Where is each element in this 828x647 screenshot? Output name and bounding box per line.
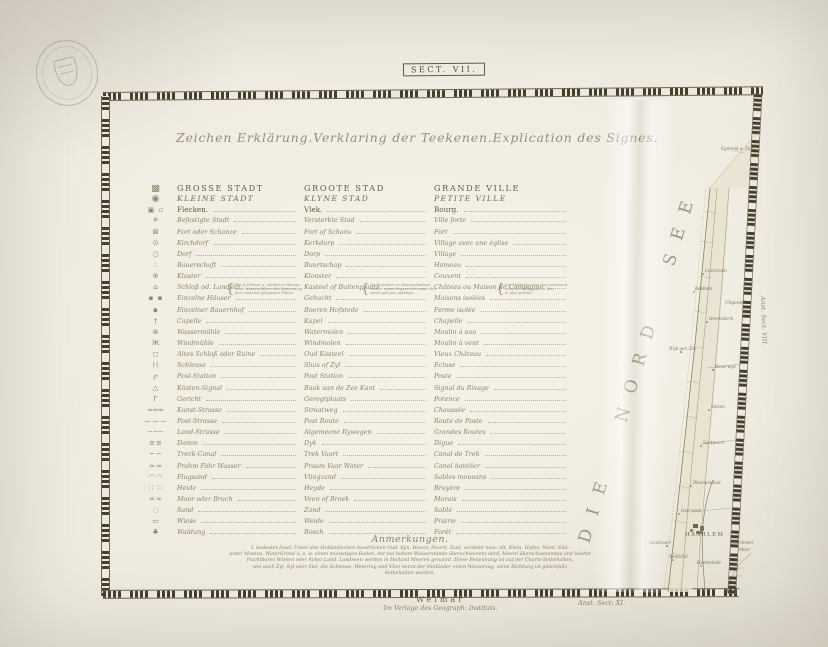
windmill-icon: Ж [135,339,177,347]
map-place-label: Beverwyk [714,364,736,369]
legend-term-fr: Village [434,250,456,258]
dotted-leader [465,397,566,401]
legend-cell-de: Einzelner Bauernhof [177,306,304,314]
dotted-leader [465,486,566,490]
legend-row: ~~Treck-CanalTrek VaartCanal de Trek [135,450,577,461]
legend-term-de: Befestigte Stadt [177,216,229,224]
legend-term-de: Moor oder Bruch [177,495,233,503]
legend-cell-nl: Kerkdorp [304,239,434,247]
map-place-label: Wyk aan Zee [669,346,697,351]
dotted-leader [328,319,426,323]
water-mill-icon: ⊗ [135,328,177,336]
legend-term-nl: Kapel [304,317,323,325]
castle-note-german: {Die Schlösser u. adelichen Häuserohne N… [226,280,350,299]
legend-term-de: Schleuse [177,361,206,369]
legend-cell-fr: Signal du Rivage [434,384,574,392]
dotted-leader [227,408,296,412]
legend-term-de: Post-Strasse [177,417,217,425]
legend-cell-nl: Dorp [304,250,434,258]
legend-cell-fr: Route de Poste [434,417,574,425]
map-place-label: Bloemendaal [692,480,721,485]
church-village-icon: ⊙ [135,239,177,247]
legend-cell-nl: Algemeene Rywegen [304,428,434,436]
legend-cell-nl: Watermolen [304,328,434,336]
legend-cell-de: Capelle [177,317,304,325]
legend-term-de: Heide [177,484,196,492]
legend-cell-fr: Écluse [434,361,574,369]
legend-term-fr: Sables mouvans [434,473,486,481]
dotted-leader [325,508,426,512]
dotted-leader [471,218,566,222]
legend-cell-de: Befestigte Stadt [177,216,304,224]
legend-cell-de: Post-Strasse [177,417,304,425]
legend-row: ▣ ▫Flecken.Vlek.Bourg. [135,205,577,216]
legend-cell-de: Flecken. [177,205,304,214]
dotted-leader [466,263,566,267]
legend-term-nl: Klooster [304,272,331,280]
market-town-icon: ▣ ▫ [135,206,177,214]
dotted-leader [219,341,296,345]
legend-term-de: Damm [177,439,198,447]
legend-term-de: Wiese [177,517,196,525]
dotted-leader [206,319,296,323]
legend-cell-de: Kirchdorf [177,239,304,247]
dotted-leader [322,441,426,445]
legend-cell-fr: Bourg. [434,205,574,214]
dotted-leader [457,374,566,378]
legend-cell-fr: Moulin à eau [434,328,574,336]
dotted-leader [327,208,426,212]
dotted-leader [212,475,296,479]
legend-row: ▩GROSSE STADTGROOTE STADGRANDE VILLE [135,183,577,194]
legend-term-nl: Zand [304,506,320,514]
map-place-label: Egmond a. Zee [720,146,753,151]
legend-cell-de: Gericht [177,395,304,403]
monastery-icon: ⊕ [135,272,177,280]
country-road-icon: ╌╌╌ [135,428,177,436]
legend-cell-nl: Geregtplaats [304,395,434,403]
castle-note-dutch: {De Kasteelen en Buitenplaatsenzonder na… [361,280,485,299]
legend-row: †CapelleKapelChapelle [135,317,577,328]
dotted-leader [360,218,426,222]
heading-dutch: Verklaring der Teekenen. [313,130,492,145]
legend-term-de: Bauerschaft [177,261,216,269]
legend-term-de: Wassermühle [177,328,220,336]
legend-term-fr: PETITE VILLE [434,194,507,203]
legend-term-fr: Ville forte [434,216,466,224]
legend-term-de: Flecken. [177,205,208,214]
stamp-shield-icon [53,56,81,88]
legend-term-nl: Algemeene Rywegen [304,428,372,436]
legend-cell-fr: Fort [434,228,574,236]
legend-term-nl: Vlek. [304,205,322,214]
dotted-leader [462,497,566,501]
legend-term-fr: Poste [434,372,452,380]
legend-cell-de: Dorf [177,250,304,258]
sheet-border-left [101,96,110,596]
dotted-leader [222,419,296,423]
legend-term-fr: Village avec une église [434,239,508,247]
dotted-leader [356,230,426,234]
legend-row: ∷ ∷HeideHeydeBruyère [135,484,577,495]
legend-term-fr: Signal du Rivage [434,384,489,392]
legend-term-de: Küsten-Signal [177,384,222,392]
legend-term-de: KLEINE STADT [177,194,254,203]
legend-cell-fr: Sable [434,506,574,514]
note-lines: De Kasteelen en Buitenplaatsenzonder naa… [370,284,441,296]
legend-term-de: Sand [177,506,193,514]
legend-heading: Zeichen Erklärung. Verklaring der Teeken… [176,130,596,145]
legend-cell-de: Wiese [177,517,304,525]
library-stamp-icon [29,33,105,112]
map-place-label: Meer [738,547,751,552]
dotted-leader [221,452,296,456]
map-place-label: Santpoort [703,440,724,445]
legend-cell-de: Wassermühle [177,328,304,336]
dotted-leader [227,386,296,390]
legend-cell-nl: Boeren Hofstede [304,306,434,314]
dotted-leader [348,374,426,378]
legend-term-fr: Vieux Château [434,350,481,358]
meadow-icon: ▭ [135,517,177,525]
legend-row: ◻Altes Schloß oder RuineOud KasteelVieux… [135,350,577,361]
legend-cell-de: Heide [177,484,304,492]
scanned-atlas-legend-sheet: SECT. VII. Zeichen Erklärung. Verklaring… [0,0,828,647]
legend-cell-nl: Praam Vaar Water [304,462,434,470]
legend-cell-fr: Digue [434,439,574,447]
legend-row: )(SchleuseSluis of ZylÉcluse [135,361,577,372]
chapel-icon: † [135,317,177,325]
legend-cell-de: KLEINE STADT [177,194,304,203]
legend-term-nl: Veen of Broek [304,495,349,503]
legend-cell-de: Fort oder Schanze [177,228,304,236]
castle-estate-icon: ⌂ [135,283,177,291]
legend-term-fr: Couvent [434,272,461,280]
legend-row: ⊠Fort oder SchanzeFort of SchansFort [135,228,577,239]
map-fragment: DIE NORD SEE [555,92,780,604]
legend-row: ▪Einzelner BauernhofBoeren HofstedeFerme… [135,306,577,317]
legend-term-fr: Hameau [434,261,461,269]
legend-term-de: Kirchdorf [177,239,208,247]
legend-cell-de: Moor oder Bruch [177,495,304,503]
legend-cell-fr: Poste [434,372,574,380]
legend-cell-nl: Fort of Schans [304,228,434,236]
legend-term-de: Gericht [177,395,201,403]
legend-cell-nl: Windmolen [304,339,434,347]
map-place-label: Castricum [705,268,727,273]
dotted-leader [468,319,566,323]
legend-cell-fr: Bruyère [434,484,574,492]
legend-cell-fr: PETITE VILLE [434,194,574,203]
dotted-leader [341,475,426,479]
legend-term-de: Treck-Canal [177,450,216,458]
heath-icon: ∷ ∷ [135,484,177,492]
dotted-leader [206,397,296,401]
dotted-leader [485,452,566,456]
dotted-leader [344,419,426,423]
legend-cell-nl: Sluis of Zyl [304,361,434,369]
legend-term-de: GROSSE STADT [177,183,264,193]
legend-term-nl: GROOTE STAD [304,183,385,193]
imprint-city: Weimar [358,595,523,604]
dotted-leader [205,274,296,278]
dotted-leader [213,241,296,245]
dotted-leader [238,497,296,501]
legend-cell-nl: Kapel [304,317,434,325]
legend-term-nl: Heyde [304,484,325,492]
legend-cell-fr: Chapelle [434,317,574,325]
brace-glyph: { [361,282,369,297]
legend-term-de: Capelle [177,317,201,325]
dotted-leader [339,241,426,245]
legend-term-fr: Fort [434,228,448,236]
dotted-leader [196,252,296,256]
dotted-leader [325,252,426,256]
legend-term-nl: Weide [304,517,324,525]
map-place-label: Uitgeest [725,300,743,305]
legend-term-de: Windmühle [177,339,214,347]
dotted-leader [211,363,296,367]
legend-cell-nl: Heyde [304,484,434,492]
legend-cell-fr: Couvent [434,272,574,280]
map-place-label: Velsen [711,404,725,409]
single-farm-icon: ▪ [135,306,177,314]
legend-term-fr: Chaussée [434,406,465,414]
dotted-leader [351,397,426,401]
legend-cell-de: Treck-Canal [177,450,304,458]
legend-cell-nl: Oud Kasteel [304,350,434,358]
dotted-leader [234,218,296,222]
dotted-leader [213,208,296,212]
legend-row: ◌SandZandSable [135,506,577,517]
legend-cell-nl: Baak aan de Zee Kant [304,384,434,392]
legend-cell-nl: Dyk [304,439,434,447]
legend-cell-de: Prahm Fahr Wasser [177,462,304,470]
dotted-leader [349,352,426,356]
legend-term-nl: Oud Kasteel [304,350,344,358]
legend-row: ▭WieseWeidePrairie [135,517,577,528]
legend-term-fr: Prairie [434,517,456,525]
gallows-icon: Γ [135,395,177,403]
legend-term-nl: Baak aan de Zee Kant [304,384,375,392]
legend-cell-fr: Village [434,250,574,258]
legend-row: ⊙KirchdorfKerkdorpVillage avec une églis… [135,239,577,250]
legend-cell-nl: Post Station [304,372,434,380]
legend-term-nl: Kerkdorp [304,239,334,247]
legend-cell-de: Altes Schloß oder Ruine [177,350,304,358]
legend-cell-fr: Vieux Château [434,350,574,358]
dotted-leader [346,341,426,345]
adjoining-sheet-label-bottom: Anst. Sect: XI. [578,599,625,607]
dotted-leader [461,519,566,523]
legend-term-de: Kloster [177,272,200,280]
legend-row: ◉KLEINE STADTKLYNE STADPETITE VILLE [135,194,577,205]
old-castle-ruin-icon: ◻ [135,350,177,358]
legend-term-fr: Moulin à eau [434,328,476,336]
post-station-icon: ℘ [135,372,177,380]
legend-row: ———Post-StrassePost RouteRoute de Poste [135,417,577,428]
dotted-leader [221,263,296,267]
legend-term-fr: Canal de Trek [434,450,480,458]
legend-term-fr: GRANDE VILLE [434,183,520,193]
legend-cell-fr: Moulin à vent [434,339,574,347]
legend-cell-de: Kunst-Strasse [177,406,304,414]
legend-term-nl: Buurtschap [304,261,341,269]
legend-row: ≈≈Prahm Fahr WasserPraam Vaar WaterCanal… [135,462,577,473]
dotted-leader [466,274,566,278]
legend-term-nl: Boeren Hofstede [304,306,359,314]
dotted-leader [203,441,296,445]
village-icon: ○ [135,250,177,258]
legend-cell-fr: Canal batelier [434,462,574,470]
legend-term-nl: Windmolen [304,339,341,347]
dotted-leader [343,452,426,456]
legend-term-de: Dorf [177,250,191,258]
section-label: SECT. VII. [403,63,485,77]
fort-redoubt-icon: ⊠ [135,228,177,236]
isolated-houses-icon: ▪ ▪ [135,294,177,302]
dotted-leader [242,230,296,234]
legend-cell-nl: Klooster [304,272,434,280]
fortified-town-icon: ✳ [135,216,177,224]
map-place-label: Heemstede [696,560,722,565]
brace-glyph: { [496,282,504,297]
legend-cell-fr: Grandes Routes [434,428,574,436]
legend-term-fr: Écluse [434,361,455,369]
legend-row: ≡≡DammDykDigue [135,439,577,450]
legend-term-de: Post-Station [177,372,216,380]
legend-cell-fr: Chaussée [434,406,574,414]
dotted-leader [329,519,426,523]
dotted-leader [464,208,566,212]
legend-term-de: Altes Schloß oder Ruine [177,350,255,358]
legend-cell-nl: Straatweg [304,406,434,414]
legend-term-de: Einzelner Bauernhof [177,306,244,314]
dotted-leader [470,408,566,412]
legend-cell-nl: Vlek. [304,205,434,214]
legend-cell-nl: Weide [304,517,434,525]
map-place-label: Haarlemer [730,540,755,545]
legend-term-nl: Praam Vaar Water [304,462,363,470]
map-place-label: Bakkum [694,286,712,291]
legend-row: ═══Kunst-StrasseStraatwegChaussée [135,406,577,417]
dotted-leader [221,374,296,378]
legend-cell-nl: Zand [304,506,434,514]
legend-term-de: Land-Strasse [177,428,220,436]
map-place-label: HAARLEM [685,532,724,538]
imprint: Weimar Im Verlage des Geograph: Institut… [358,595,523,612]
dotted-leader [354,497,426,501]
legend-term-fr: Digue [434,439,453,447]
sand-icon: ◌ [135,506,177,514]
dotted-leader [198,508,296,512]
legend-term-de: Fort oder Schanze [177,228,237,236]
tow-canal-icon: ~~ [135,450,177,458]
legend-cell-fr: Marais [434,495,574,503]
dotted-leader [225,430,296,434]
legend-row: ℘Post-StationPost StationPoste [135,372,577,383]
legend-term-fr: Marais [434,495,457,503]
legend-term-nl: Fort of Schans [304,228,351,236]
legend-term-nl: KLYNE STAD [304,194,369,203]
legend-cell-de: Bauerschaft [177,261,304,269]
legend-term-nl: Dorp [304,250,320,258]
brace-glyph: { [226,282,234,297]
legend-term-fr: Sable [434,506,452,514]
map-place-label: Overveen [681,508,702,513]
legend-cell-fr: Ferme isolée [434,306,574,314]
heading-german: Zeichen Erklärung. [176,130,313,145]
dotted-leader [368,464,426,468]
legend-term-fr: Ferme isolée [434,306,476,314]
legend-cell-de: Land-Strasse [177,428,304,436]
dotted-leader [377,430,426,434]
small-city-icon: ◉ [135,194,177,204]
legend-cell-nl: Versterkte Stad [304,216,434,224]
legend-term-nl: Watermolen [304,328,343,336]
legend-cell-nl: KLYNE STAD [304,194,434,203]
map-place-label: Bentveld [668,554,688,559]
legend-term-nl: Trek Vaart [304,450,338,458]
legend-cell-nl: Buurtschap [304,261,434,269]
dotted-leader [249,308,296,312]
legend-row: ⊗WassermühleWatermolenMoulin à eau [135,328,577,339]
legend-cell-fr: Canal de Trek [434,450,574,458]
legend-row: ○DorfDorpVillage [135,250,577,261]
legend-term-de: Einzelne Häuser [177,294,231,302]
dotted-leader [460,363,566,367]
legend-cell-de: Post-Station [177,372,304,380]
dotted-leader [458,441,566,445]
dotted-leader [481,330,566,334]
large-city-icon: ▩ [135,184,177,194]
legend-cell-nl: Post Route [304,417,434,425]
legend-cell-fr: Village avec une église [434,239,574,247]
legend-term-nl: Vliegzand [304,473,336,481]
legend-term-nl: Geregtplaats [304,395,346,403]
dotted-leader [457,508,566,512]
legend-term-de: Prahm Fahr Wasser [177,462,241,470]
legend-term-nl: Post Station [304,372,343,380]
legend-cell-de: Flugsand [177,473,304,481]
legend-row: ✳Befestigte StadtVersterkte StadVille fo… [135,216,577,227]
legend-cell-nl: Veen of Broek [304,495,434,503]
legend-cell-fr: Sables mouvans [434,473,574,481]
legend-term-fr: Chapelle [434,317,463,325]
post-road-icon: ——— [135,417,177,425]
legend-cell-de: GROSSE STADT [177,183,304,193]
barge-waterway-icon: ≈≈ [135,462,177,470]
legend-row: ╌╌╌Land-StrasseAlgemeene RywegenGrandes … [135,428,577,439]
dotted-leader [336,274,426,278]
dotted-leader [484,341,566,345]
legend-cell-nl: Trek Vaart [304,450,434,458]
legend-term-fr: Route de Poste [434,417,483,425]
legend-cell-nl: GROOTE STAD [304,183,434,193]
dotted-leader [225,330,296,334]
legend-term-fr: Canal batelier [434,462,480,470]
dotted-leader [461,252,566,256]
legend-row: ΓGerichtGeregtplaatsPotence [135,395,577,406]
legend-term-fr: Potence [434,395,460,403]
dotted-leader [348,330,426,334]
legend-term-fr: Moulin à vent [434,339,479,347]
dotted-leader [246,464,296,468]
legend-term-nl: Straatweg [304,406,338,414]
dotted-leader [343,408,426,412]
legend-cell-fr: Hameau [434,261,574,269]
legend-row: ∴BauerschaftBuurtschapHameau [135,261,577,272]
